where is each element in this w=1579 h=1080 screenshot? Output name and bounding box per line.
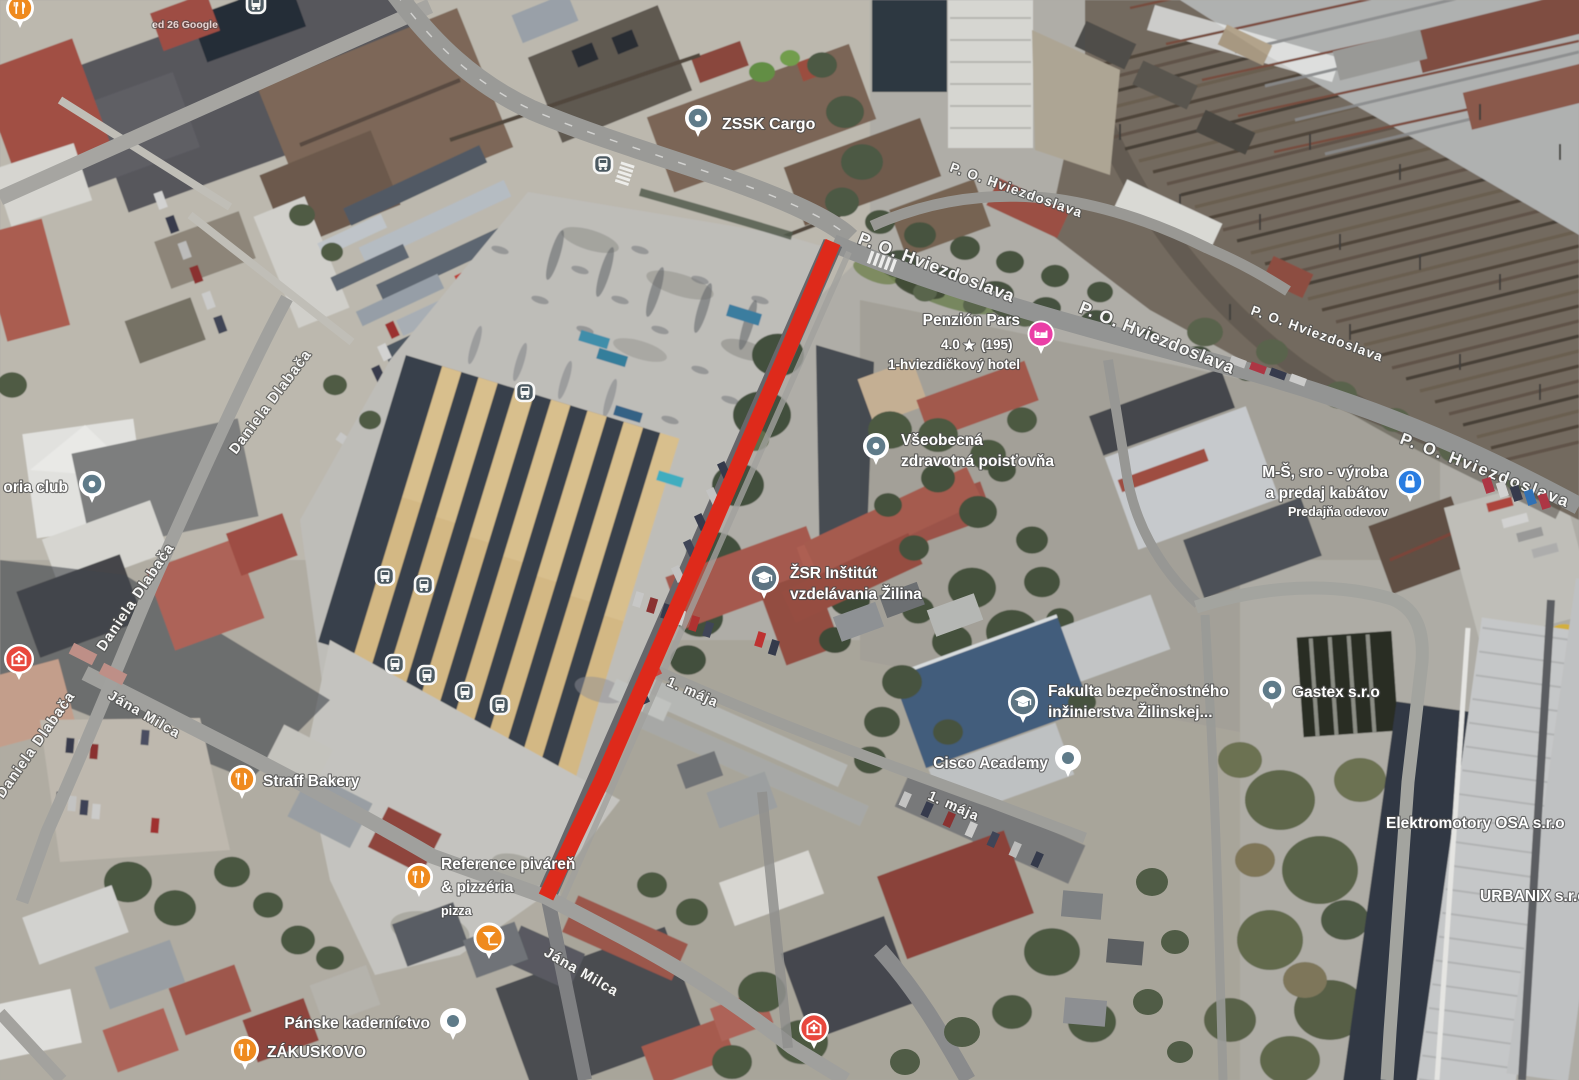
svg-text:Fakulta bezpečnostného: Fakulta bezpečnostného — [1048, 683, 1229, 700]
svg-text:ŽSR Inštitút: ŽSR Inštitút — [790, 564, 877, 582]
svg-text:& pizzéria: & pizzéria — [441, 879, 514, 896]
svg-text:ZSSK Cargo: ZSSK Cargo — [722, 116, 816, 133]
svg-text:vzdelávania Žilina: vzdelávania Žilina — [790, 585, 922, 603]
svg-text:★: ★ — [963, 337, 976, 353]
svg-text:a predaj kabátov: a predaj kabátov — [1266, 485, 1389, 502]
svg-text:pizza: pizza — [441, 904, 473, 918]
svg-text:Penzión Pars: Penzión Pars — [923, 312, 1020, 329]
svg-text:Cisco Academy: Cisco Academy — [933, 755, 1048, 772]
svg-text:1-hviezdičkový hotel: 1-hviezdičkový hotel — [888, 357, 1020, 372]
svg-text:4.0: 4.0 — [941, 337, 960, 352]
svg-text:M-Š, sro - výroba: M-Š, sro - výroba — [1262, 463, 1388, 481]
svg-text:Reference piváreň: Reference piváreň — [441, 856, 575, 873]
svg-text:(195): (195) — [981, 337, 1013, 352]
svg-text:inžinierstva Žilinskej...: inžinierstva Žilinskej... — [1048, 703, 1213, 721]
svg-text:zdravotná poisťovňa: zdravotná poisťovňa — [901, 453, 1054, 470]
svg-text:oria club: oria club — [3, 479, 68, 496]
svg-text:Straff Bakery: Straff Bakery — [263, 773, 360, 790]
svg-text:ZÁKUSKOVO: ZÁKUSKOVO — [267, 1044, 366, 1061]
svg-text:Elektromotory OSA s.r.o: Elektromotory OSA s.r.o — [1386, 815, 1565, 832]
svg-text:Gastex s.r.o: Gastex s.r.o — [1292, 684, 1380, 701]
svg-text:URBANIX s.r.o: URBANIX s.r.o — [1480, 888, 1579, 905]
svg-text:ed 26 Google: ed 26 Google — [152, 19, 218, 31]
svg-text:Predajňa odevov: Predajňa odevov — [1288, 505, 1388, 519]
svg-text:Všeobecná: Všeobecná — [901, 432, 983, 449]
svg-text:Pánske kaderníctvo: Pánske kaderníctvo — [284, 1015, 430, 1032]
